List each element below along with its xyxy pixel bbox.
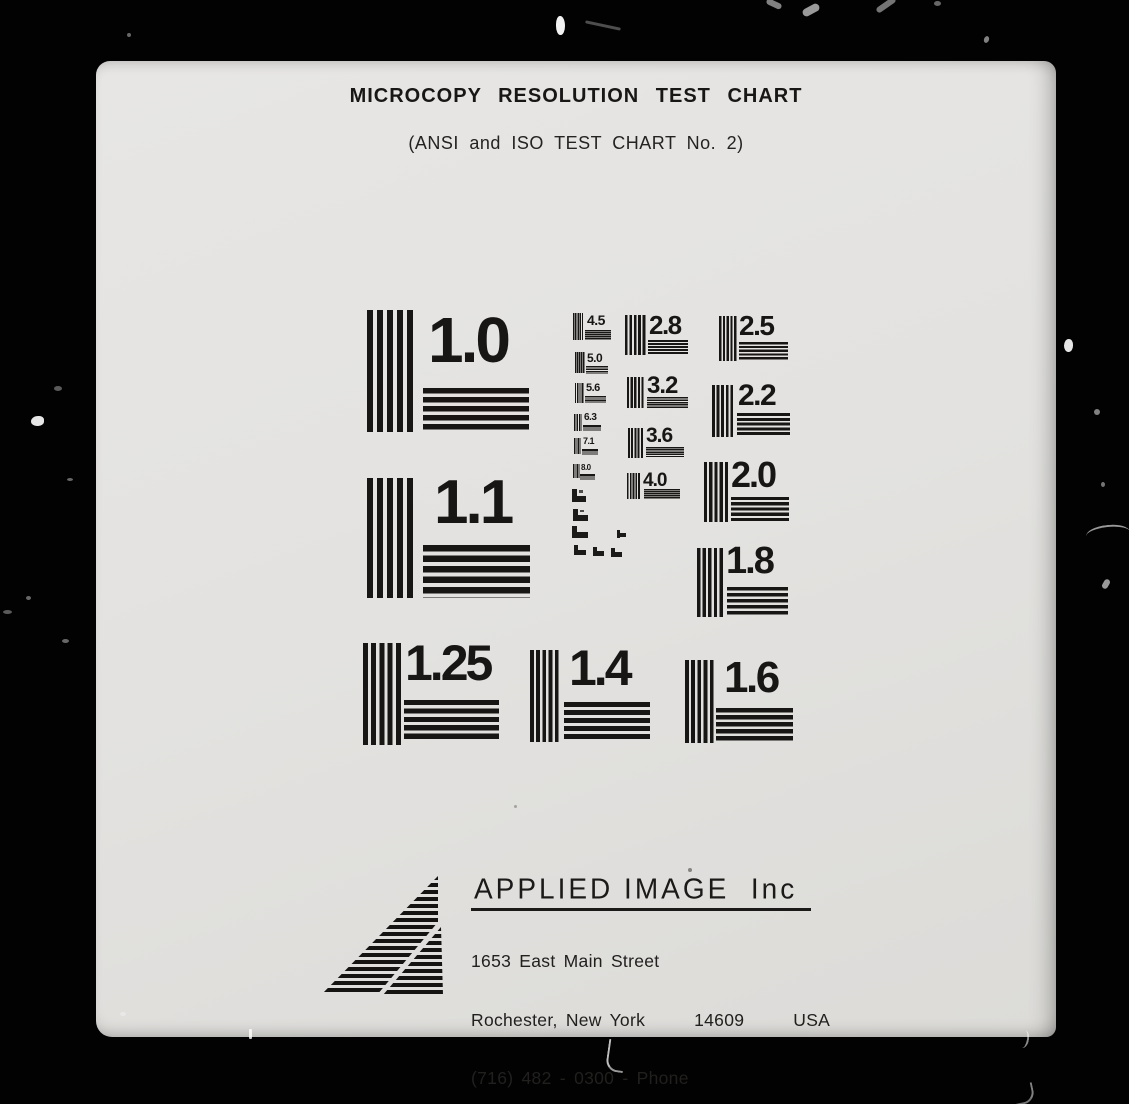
phone-line: (716) 482 - 0300 - Phone [471, 1069, 830, 1089]
film-speck [875, 0, 896, 14]
target-2.5-horizontal-bars [739, 342, 788, 361]
paper-speck [514, 805, 517, 808]
target-5.0-label: 5.0 [587, 352, 602, 364]
target-1.6-label: 1.6 [724, 656, 778, 700]
target-2.2-label: 2.2 [738, 381, 775, 411]
target-3.2-horizontal-bars [647, 397, 688, 409]
film-scratch [585, 20, 621, 30]
target-1.0-label: 1.0 [428, 308, 508, 372]
film-speck [26, 596, 31, 600]
target-1.6-horizontal-bars [716, 708, 793, 743]
target-1.6-vertical-bars [685, 660, 716, 743]
target-7.1-vertical-bars [574, 438, 581, 454]
target-3.6-vertical-bars [628, 428, 644, 458]
company-address-block: 1653 East Main Street Rochester, New Yor… [471, 913, 830, 1104]
target-4.5-label: 4.5 [587, 313, 605, 327]
film-speck [120, 1012, 126, 1016]
film-speck [67, 478, 73, 481]
micro-target-bars [620, 533, 626, 537]
target-4.5-vertical-bars [573, 313, 584, 340]
target-2.8-vertical-bars [625, 315, 647, 355]
micro-target-bars [615, 552, 622, 557]
micro-target-bars [578, 515, 588, 521]
micro-target-bars [597, 551, 604, 556]
target-1.0-vertical-bars [367, 310, 417, 432]
film-speck [983, 35, 990, 43]
target-6.3-horizontal-bars [583, 425, 601, 431]
target-8.0-vertical-bars [573, 464, 580, 478]
target-5.6-label: 5.6 [586, 383, 600, 394]
target-6.3-label: 6.3 [584, 413, 596, 423]
micro-target-label-smudge [579, 490, 583, 493]
target-1.4-label: 1.4 [569, 643, 630, 693]
film-speck [3, 610, 12, 614]
film-speck [934, 1, 941, 6]
target-1.25-vertical-bars [363, 643, 404, 745]
film-speck [31, 416, 44, 426]
micro-target-bars [577, 496, 586, 502]
film-speck [1101, 482, 1105, 487]
target-1.1-label: 1.1 [434, 472, 511, 534]
address-line-2: Rochester, New York 14609 USA [471, 1011, 830, 1031]
target-2.5-label: 2.5 [739, 312, 773, 340]
target-8.0-label: 8.0 [581, 464, 591, 472]
target-1.25-horizontal-bars [404, 700, 499, 742]
company-name: APPLIED IMAGE Inc [474, 872, 797, 905]
paper-speck [688, 868, 692, 872]
target-2.2-horizontal-bars [737, 413, 790, 437]
target-2.2-vertical-bars [712, 385, 735, 437]
film-speck [62, 639, 69, 643]
company-underline [471, 908, 811, 911]
target-3.6-label: 3.6 [646, 425, 672, 446]
target-6.3-vertical-bars [574, 414, 582, 431]
chart-subtitle: (ANSI and ISO TEST CHART No. 2) [96, 133, 1056, 154]
target-2.0-horizontal-bars [731, 497, 789, 523]
target-5.6-horizontal-bars [585, 396, 606, 403]
micro-target-bars [578, 550, 586, 555]
target-1.4-vertical-bars [530, 650, 561, 742]
target-1.8-horizontal-bars [727, 587, 788, 617]
target-7.1-horizontal-bars [582, 449, 598, 455]
target-5.0-horizontal-bars [586, 366, 608, 374]
film-scratch [1017, 1029, 1031, 1049]
target-2.0-label: 2.0 [731, 457, 775, 493]
target-3.2-vertical-bars [627, 377, 645, 408]
address-line-1: 1653 East Main Street [471, 952, 830, 972]
target-5.6-vertical-bars [575, 383, 584, 403]
test-chart-paper: MICROCOPY RESOLUTION TEST CHART (ANSI an… [96, 61, 1056, 1037]
film-scratch [1012, 1082, 1036, 1104]
film-speck [54, 386, 62, 391]
chart-title: MICROCOPY RESOLUTION TEST CHART [96, 85, 1056, 108]
target-3.6-horizontal-bars [646, 447, 684, 458]
target-7.1-label: 7.1 [583, 437, 594, 446]
film-scan-background: MICROCOPY RESOLUTION TEST CHART (ANSI an… [0, 0, 1129, 1104]
film-scratch [801, 2, 821, 18]
film-speck [556, 16, 565, 35]
micro-target-label-smudge [580, 510, 584, 512]
target-2.8-label: 2.8 [649, 312, 681, 338]
target-2.0-vertical-bars [704, 462, 730, 522]
film-speck [127, 33, 131, 37]
target-5.0-vertical-bars [575, 352, 585, 373]
micro-target-bars [577, 532, 588, 538]
film-scratch [765, 0, 782, 10]
target-4.0-label: 4.0 [643, 471, 666, 490]
target-4.0-horizontal-bars [644, 489, 680, 499]
film-speck [1101, 578, 1111, 590]
target-2.5-vertical-bars [719, 316, 738, 361]
target-4.5-horizontal-bars [585, 330, 611, 340]
target-8.0-horizontal-bars [580, 474, 595, 480]
film-speck [1064, 339, 1073, 352]
film-speck [249, 1029, 252, 1039]
target-1.0-horizontal-bars [423, 388, 529, 432]
target-1.1-vertical-bars [367, 478, 417, 598]
target-4.0-vertical-bars [627, 473, 641, 499]
target-1.8-vertical-bars [697, 548, 725, 617]
target-1.1-horizontal-bars [423, 545, 530, 598]
target-2.8-horizontal-bars [648, 340, 688, 355]
target-1.25-label: 1.25 [405, 638, 490, 688]
film-scratch [1085, 523, 1129, 546]
target-1.4-horizontal-bars [564, 702, 650, 742]
target-1.8-label: 1.8 [726, 542, 773, 580]
film-speck [1094, 409, 1100, 415]
target-3.2-label: 3.2 [647, 374, 677, 398]
